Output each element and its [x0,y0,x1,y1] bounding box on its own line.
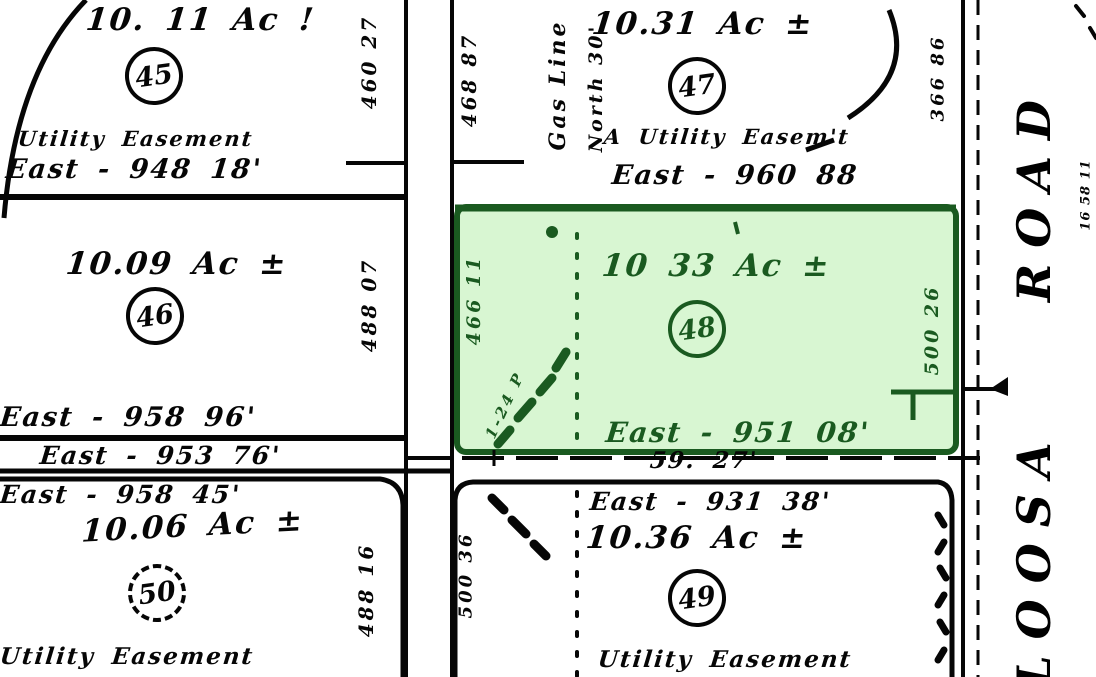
parcel-48-acreage: 10 33 Ac ± [600,248,832,284]
parcel-49-number: 49 [676,580,718,616]
middle-road-dim-left-top: 460 27 [357,15,381,110]
parcel-49-west-dimension: 500 36 [456,532,477,619]
parcel-46-acreage: 10.09 Ac ± [64,246,289,282]
middle-road-dim-left-bottom: 488 16 [354,543,378,638]
parcel-45-acreage: 10. 11 Ac ! [84,2,317,38]
parcel-50-easement-label: Utility Easement [0,643,256,670]
middle-strip-dimension: East - 953 76' [38,441,282,470]
parcel-46-south-dimension: East - 958 96' [0,402,258,433]
parcel-48-number: 48 [676,311,718,347]
road-name-upper: ROAD [1007,84,1061,302]
parcel-48-south-dimension: East - 951 08' [604,416,871,449]
parcel-45-easement-label: Utility Easement [17,126,255,151]
parcel-48-east-dimension: 500 26 [921,285,943,376]
parcel-47-easement-label: A Utility Easem't [603,124,852,149]
parcel-47-acreage: 10.31 Ac ± [590,6,815,42]
plat-map: 10. 11 Ac ! 45 Utility Easement East - 9… [0,0,1096,677]
middle-road-dim-right-top: 468 87 [457,33,481,128]
parcel-46-number: 46 [134,298,176,334]
road-arrow-mark [990,377,1008,396]
parcel-46-region[interactable] [0,200,400,435]
parcel-47-south-dimension: East - 960 88 [610,160,859,191]
parcel-48-west-dimension: 466 11 [463,255,485,346]
parcel-50-number: 50 [136,575,178,611]
parcel-47-east-dimension: 366 86 [928,35,949,122]
east-road-edge-dimension: 16 58 11 [1079,159,1094,230]
parcel-49-acreage: 10.36 Ac ± [584,520,809,556]
parcel-49-north-dimension: East - 931 38' [588,487,832,516]
parcel-49-easement-label: Utility Easement [597,646,854,673]
cross-strip-dimension: 59. 27' [649,447,760,474]
gas-line-label: Gas Line [545,20,571,151]
middle-road-dim-left-mid: 488 07 [357,258,381,353]
road-name-lower: LOOSA [1007,426,1061,677]
parcel-50-north-dimension: East - 958 45' [0,480,243,509]
parcel-45-south-dimension: East - 948 18' [4,154,264,185]
parcel-45-number: 45 [133,58,175,94]
parcel-47-number: 47 [676,68,718,104]
